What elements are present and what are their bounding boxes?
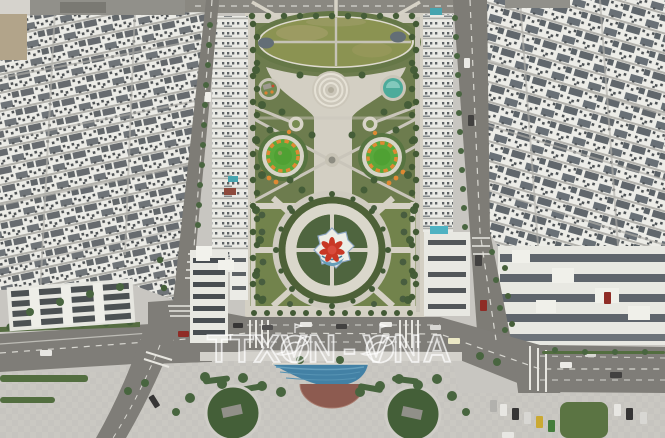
svg-text:T: T [230,328,254,371]
svg-text:-: - [343,328,356,371]
svg-text:X: X [254,328,280,371]
svg-text:A: A [423,328,451,371]
svg-text:N: N [308,328,336,371]
svg-text:N: N [393,328,421,371]
svg-text:T: T [207,328,231,371]
